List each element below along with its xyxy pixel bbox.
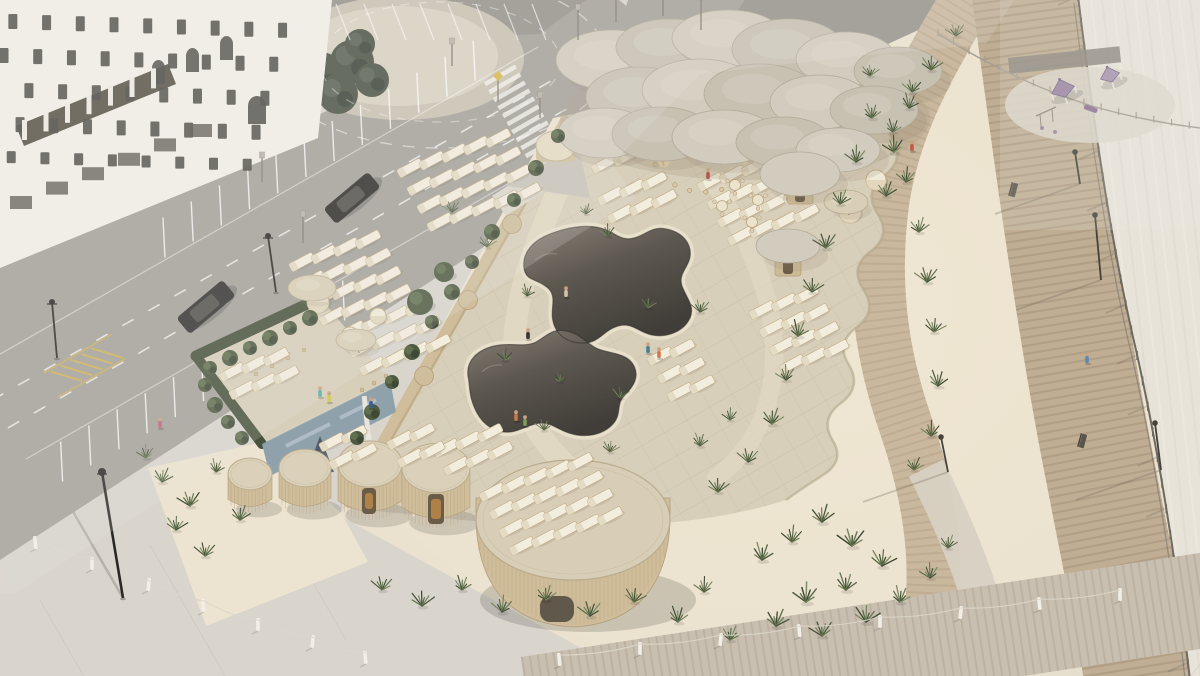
rendering-canvas <box>0 0 1200 676</box>
wall-pod <box>415 367 434 386</box>
bush <box>385 375 399 389</box>
rendering-frame <box>0 0 1200 676</box>
bush <box>350 431 364 445</box>
bush <box>404 344 420 360</box>
topright-desat-overlay <box>1000 0 1200 230</box>
